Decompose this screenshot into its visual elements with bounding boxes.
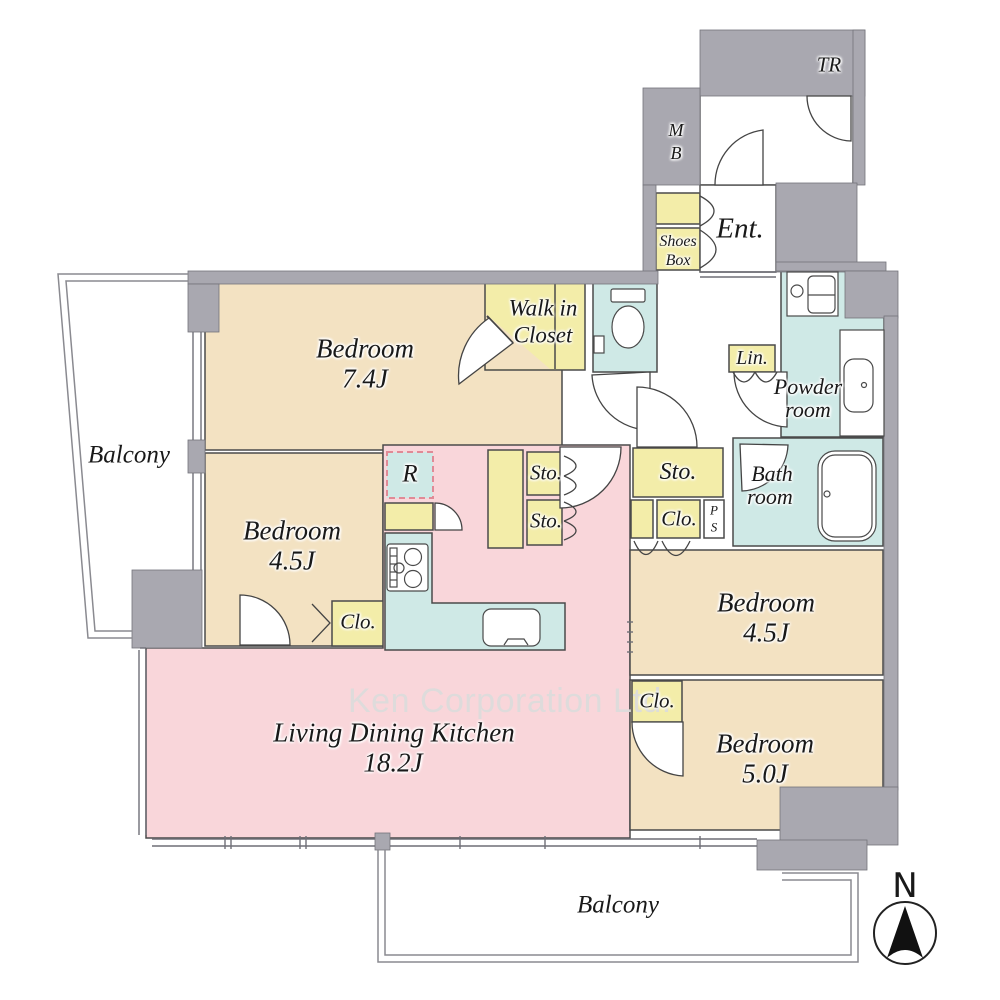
bath-room-label-2: room (747, 486, 793, 508)
watermark: Ken Corporation Ltd. (348, 682, 672, 721)
powder-room-label-2: room (785, 399, 831, 421)
bedroom-74-label: Bedroom (316, 336, 414, 363)
kitchen-sink-icon (483, 609, 540, 646)
north-label: N (892, 869, 917, 903)
balcony-left-label: Balcony (88, 443, 170, 468)
shoes-box-upper (656, 193, 700, 224)
meter-box-label-2: B (671, 144, 682, 162)
pipe-space-label-2: S (711, 521, 718, 534)
storage-kitchen-upper-label: Sto. (530, 463, 562, 484)
refrigerator-label: R (402, 462, 417, 487)
bedroom-45-left-size: 4.5J (269, 548, 315, 575)
shoes-box-label-2: Box (666, 253, 691, 269)
powder-sink-icon (840, 330, 884, 436)
meter-box-label-1: M (669, 121, 684, 139)
floor-plan: Bedroom 7.4J Bedroom 4.5J Bedroom 4.5J B… (0, 0, 1000, 1000)
bedroom-50-label: Bedroom (716, 731, 814, 758)
hall-door-upper (637, 387, 697, 447)
hall-small-storage-box (631, 500, 653, 538)
kitchen-cabinet (385, 503, 433, 530)
closet-bedroom-45-left-label: Clo. (340, 612, 376, 633)
storage-hall-label: Sto. (660, 460, 697, 484)
stove-icon (387, 544, 428, 591)
walk-in-closet-label-2: Closet (514, 324, 573, 347)
bedroom-45-left-label: Bedroom (243, 518, 341, 545)
ldk-label: Living Dining Kitchen (273, 720, 514, 747)
trunk-room-label: TR (817, 55, 842, 76)
entrance-label: Ent. (716, 215, 764, 244)
kitchen-column (488, 450, 523, 548)
washing-machine-icon (787, 272, 838, 316)
closet-bedroom-50-label: Clo. (639, 691, 675, 712)
floor-plan-drawing (0, 0, 1000, 1000)
storage-kitchen-lower-label: Sto. (530, 511, 562, 532)
bedroom-45-right-label: Bedroom (717, 590, 815, 617)
linen-label: Lin. (736, 348, 768, 368)
compass (874, 902, 936, 964)
bedroom-74-size: 7.4J (342, 366, 388, 393)
bedroom-45-right-size: 4.5J (743, 620, 789, 647)
bath-room-label-1: Bath (751, 463, 793, 485)
bedroom-50-size: 5.0J (742, 761, 788, 788)
balcony-bottom-label: Balcony (577, 893, 659, 918)
ldk-size: 18.2J (363, 750, 422, 777)
pipe-space-label-1: P (710, 504, 718, 517)
shoes-box-label-1: Shoes (659, 234, 696, 250)
bathtub-icon (818, 451, 876, 541)
powder-room-label-1: Powder (774, 376, 842, 398)
closet-hall-label: Clo. (661, 509, 697, 530)
walk-in-closet-label-1: Walk in (509, 297, 578, 320)
